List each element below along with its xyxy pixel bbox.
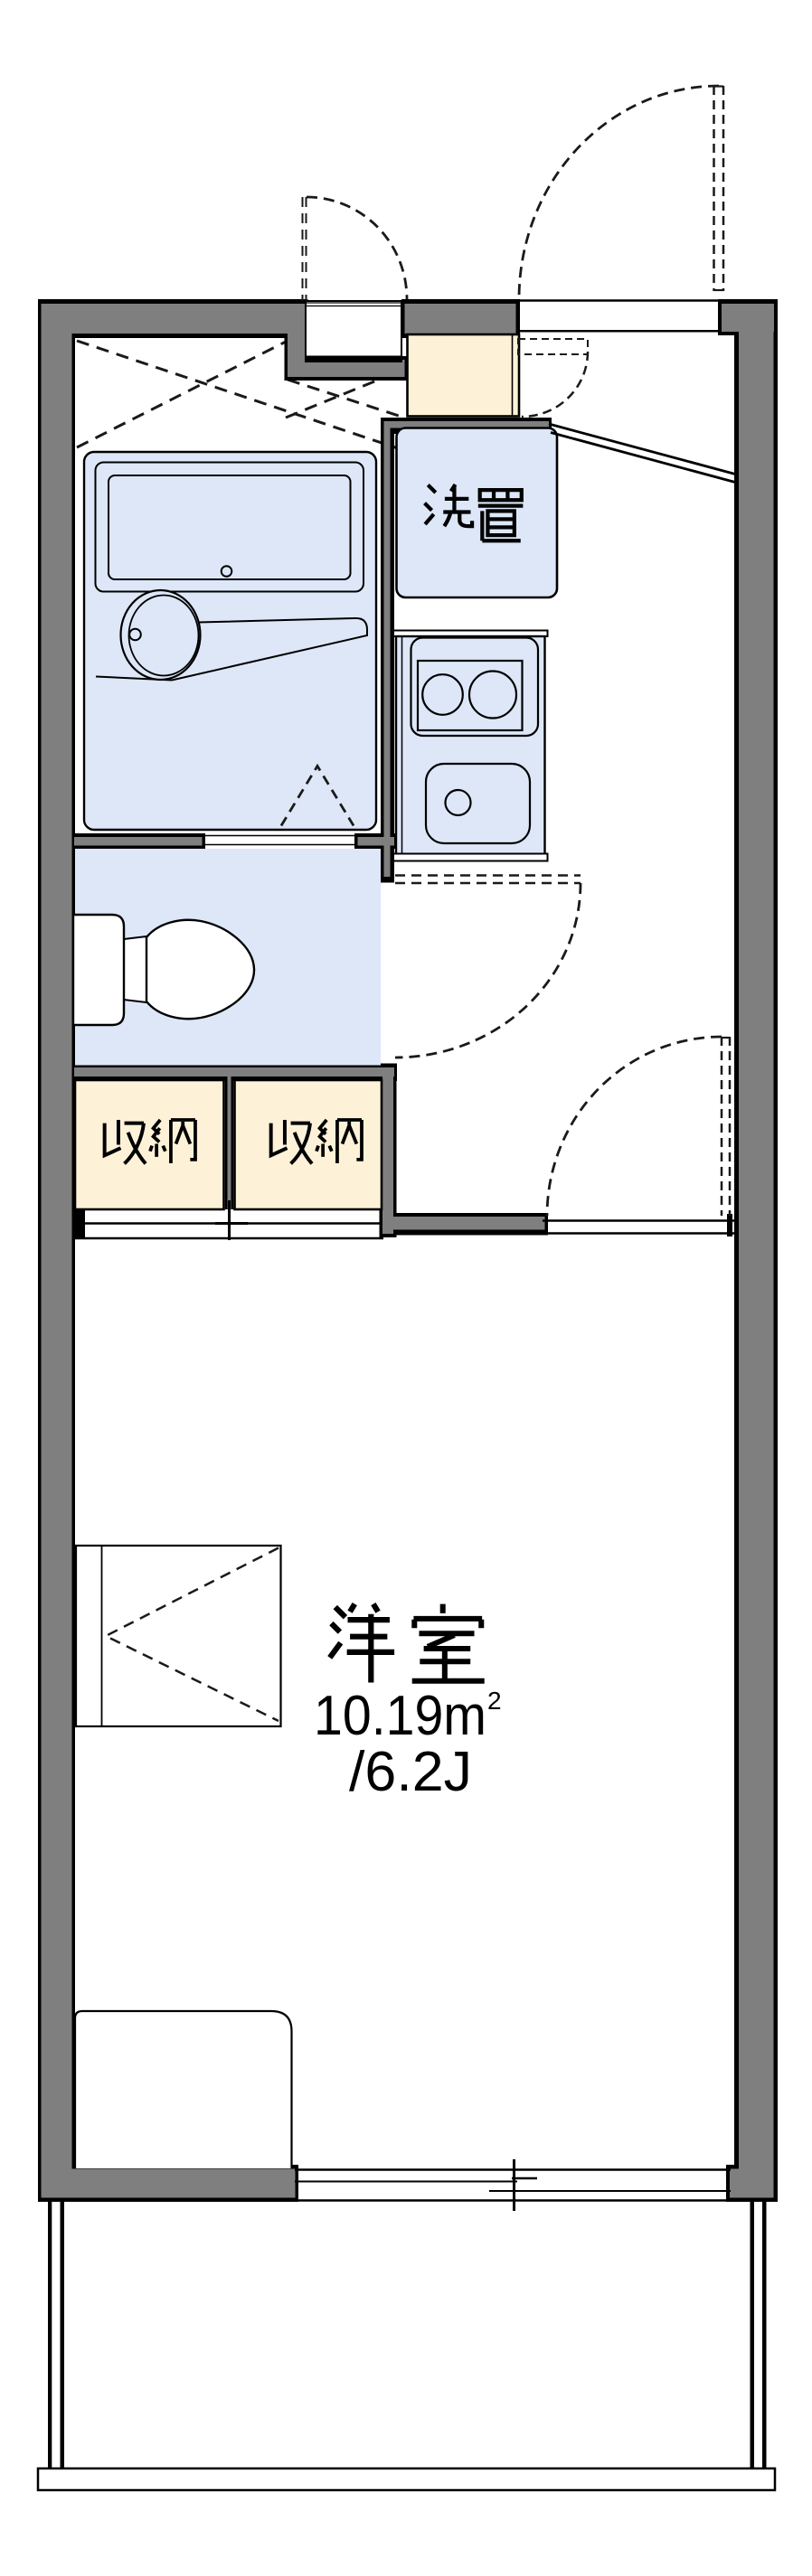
svg-text:10.19m: 10.19m bbox=[314, 1685, 486, 1747]
svg-text:2: 2 bbox=[487, 1687, 502, 1715]
svg-text:/6.2J: /6.2J bbox=[349, 1741, 472, 1803]
